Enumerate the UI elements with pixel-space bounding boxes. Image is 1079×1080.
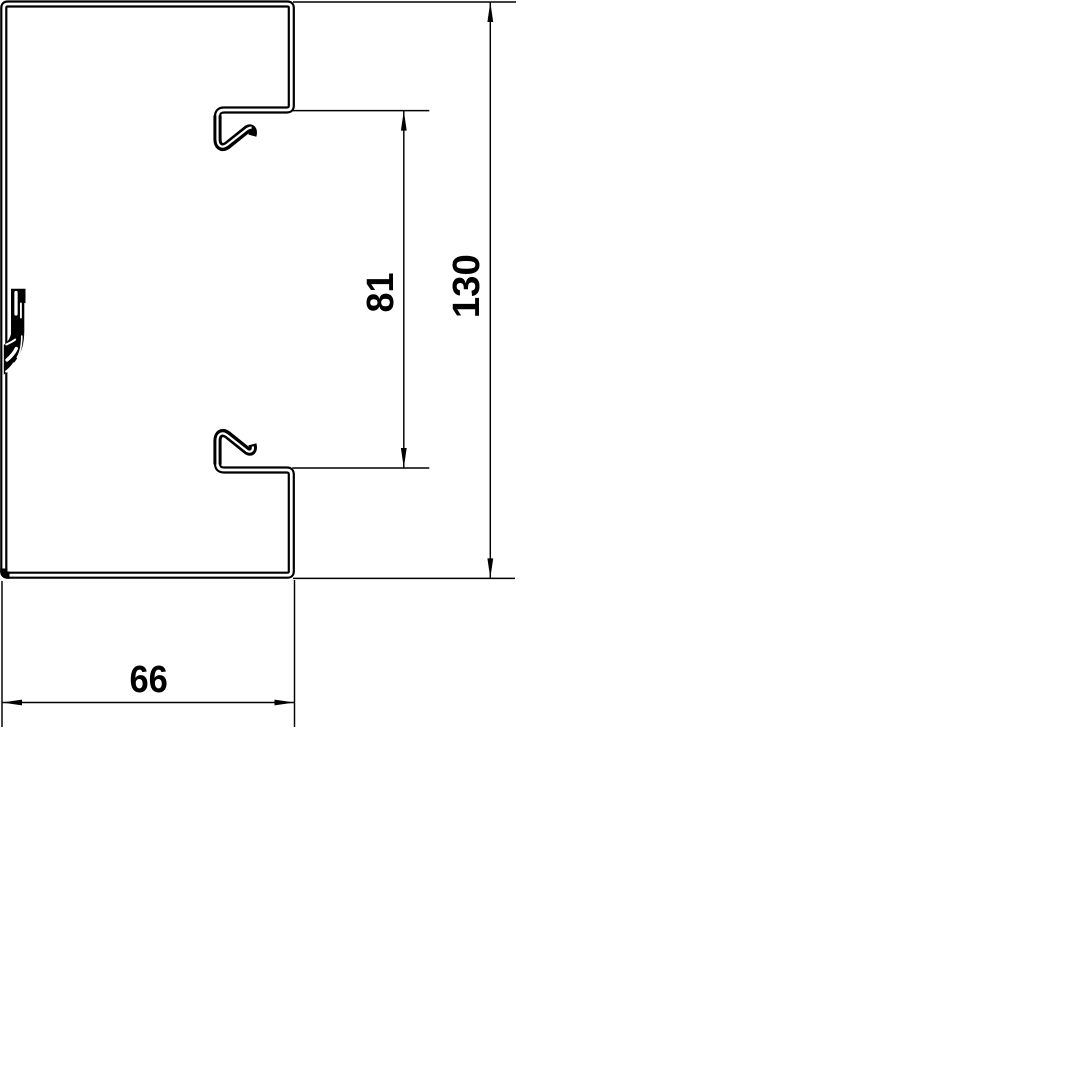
svg-text:130: 130 <box>445 254 488 318</box>
svg-text:66: 66 <box>129 657 167 700</box>
svg-text:81: 81 <box>358 272 401 312</box>
